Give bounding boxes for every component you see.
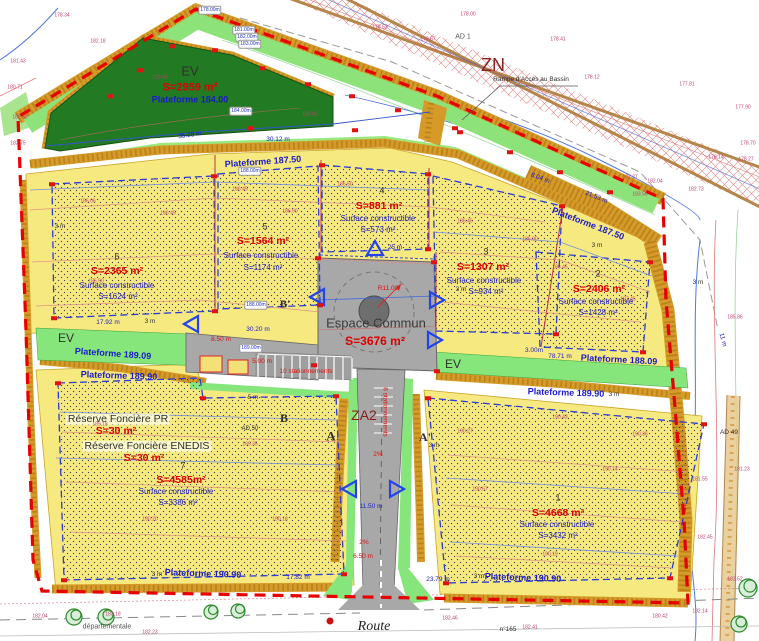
dimension-label: 17.92 m <box>96 320 120 327</box>
ev-strip-left-label: EV <box>58 332 74 344</box>
dimension-label: 10 stationnements <box>279 369 332 376</box>
survey-marker-icon <box>333 394 339 398</box>
dimension-label: 11.50 m <box>359 504 382 511</box>
lot-5-sc-area: S=1174 m² <box>244 264 283 272</box>
elevation-box: 184.00m <box>229 107 252 116</box>
lot-4-sc-label: Surface constructible <box>341 215 416 223</box>
survey-marker-icon <box>507 150 513 154</box>
reserve-pr-label: Réserve Foncière PR <box>66 414 170 425</box>
spot-elevation: 190.20 <box>142 518 157 523</box>
spot-elevation: 182.73 <box>688 188 703 193</box>
survey-marker-icon <box>553 332 559 336</box>
spot-elevation: 178.52 <box>372 26 387 31</box>
survey-marker-icon <box>49 182 55 186</box>
dimension-label: 3 m <box>693 280 704 287</box>
survey-marker-icon <box>107 94 113 98</box>
spot-elevation: 182.27 <box>622 176 637 181</box>
spot-elevation: 181.23 <box>734 468 749 473</box>
survey-marker-icon <box>212 309 218 313</box>
lot-4-sc-area: S=573 m² <box>361 226 396 234</box>
spot-elevation: 181.55 <box>692 478 707 483</box>
road-junction-point <box>327 618 334 625</box>
n165-label: n°165 <box>499 627 516 634</box>
survey-marker-icon <box>425 247 431 251</box>
spot-elevation: 182.75 <box>10 142 25 147</box>
survey-marker-icon <box>341 572 347 576</box>
survey-marker-icon <box>395 108 401 112</box>
survey-marker-icon <box>311 363 317 367</box>
elevation-box: 188.00m <box>238 167 261 176</box>
survey-marker-icon <box>211 174 217 178</box>
parcel-ad1-label: AD 1 <box>455 34 471 41</box>
reserve-enedis-label: Réserve Foncière ENEDIS <box>83 441 212 452</box>
spot-elevation: 178.12 <box>584 76 599 81</box>
spot-elevation: 185.86 <box>727 316 742 321</box>
spot-elevation: 178.67 <box>420 38 435 43</box>
lot-2-sc-area: S=1428 m² <box>578 309 617 317</box>
spot-elevation: 190.18 <box>272 518 287 523</box>
spot-elevation: 182.46 <box>442 617 457 622</box>
section-b-label: B <box>280 412 288 424</box>
survey-marker-icon <box>640 350 646 354</box>
spot-elevation: 177.81 <box>679 83 694 88</box>
lot-6-area: S=2365 m² <box>91 266 143 277</box>
departementale-label: départementale <box>83 624 132 631</box>
spot-elevation: 182.23 <box>142 631 157 636</box>
survey-marker-icon <box>667 576 673 580</box>
espace-commun-label: Espace Commun <box>326 317 426 330</box>
lot-5-sc-label: Surface constructible <box>224 252 299 260</box>
survey-marker-icon <box>425 396 431 400</box>
survey-marker-icon <box>259 66 265 70</box>
spot-elevation: 182.18 <box>90 40 105 45</box>
lot-6-number: 6 <box>114 253 119 262</box>
survey-marker-icon <box>315 256 321 260</box>
lot-1-number: 1 <box>555 494 560 503</box>
lot-3-area: S=1307 m² <box>457 262 509 273</box>
spot-elevation: 182.14 <box>692 610 707 615</box>
spot-elevation: 190.43 <box>552 416 567 421</box>
survey-marker-icon <box>431 260 437 264</box>
survey-marker-icon <box>607 190 613 194</box>
spot-elevation: 180.71 <box>7 86 22 91</box>
spot-elevation: 186.90 <box>282 210 297 215</box>
dimension-label: 6.50 m <box>353 554 373 561</box>
spot-elevation: 186.50 <box>337 183 352 188</box>
survey-marker-icon <box>559 204 565 208</box>
spot-elevation: 182.52 <box>727 578 742 583</box>
lot-4-area: S=881 m² <box>356 201 402 212</box>
parcel-ad50-label: AD 50 <box>242 426 259 432</box>
dimension-label: 3 m <box>145 319 156 326</box>
site-plan: EV S=2959 m² Plateforme 184.00 ZN ZA2 AD… <box>0 0 759 641</box>
elevation-box: 188.00m <box>244 301 267 310</box>
section-b-prime-label: B' <box>280 300 290 311</box>
survey-marker-icon <box>137 68 143 72</box>
parcel-ad49-label: AD 49 <box>720 430 738 437</box>
spot-elevation: 182.45 <box>697 536 712 541</box>
spot-elevation: 189.35 <box>242 443 257 448</box>
spot-elevation: 183.43 <box>152 76 167 81</box>
survey-marker-icon <box>200 396 206 400</box>
dimension-label: 3 m <box>456 287 467 294</box>
dimension-label: 3.00m <box>525 348 543 355</box>
spot-elevation: 178.14 <box>708 156 723 161</box>
dimension-label: 30.20 m <box>246 327 270 334</box>
dimension-label: 5.00 m <box>252 359 272 366</box>
ev-basin-area: S=2959 m² <box>163 83 218 94</box>
spot-elevation: 178.34 <box>54 14 69 19</box>
spot-elevation: 186.45 <box>457 220 472 225</box>
elevation-box: 189.00m <box>239 344 262 353</box>
dimension-label: 3 m <box>429 443 440 450</box>
dimension-label: 25 m <box>388 245 402 252</box>
spot-elevation: 181.43 <box>10 60 25 65</box>
survey-marker-icon <box>425 172 431 176</box>
elevation-box: 178.00m <box>198 6 221 15</box>
ev-basin-plateforme: Plateforme 184.00 <box>152 96 229 105</box>
survey-marker-icon <box>452 126 458 130</box>
survey-marker-icon <box>557 170 563 174</box>
section-a-label: A <box>326 430 335 443</box>
spot-elevation: 177.90 <box>735 106 750 111</box>
lot-5-number: 5 <box>262 223 267 232</box>
spot-elevation: 182.32 <box>12 116 27 121</box>
survey-marker-icon <box>55 381 61 385</box>
ev-basin-label: EV <box>181 65 198 78</box>
dimension-label: 8.50 m <box>211 337 231 344</box>
survey-marker-icon <box>352 128 358 132</box>
spot-elevation: 189.18 <box>92 423 107 428</box>
spot-elevation: 190.27 <box>457 430 472 435</box>
spot-elevation: 190.14 <box>602 468 617 473</box>
spot-elevation: 178.27 <box>738 158 753 163</box>
dimension-label: 3 m <box>55 224 66 231</box>
survey-marker-icon <box>443 581 449 585</box>
lot-5-area: S=1564 m² <box>237 236 289 247</box>
zone-za2-label: ZA2 <box>351 408 377 422</box>
spot-elevation: 190.36 <box>632 433 647 438</box>
spot-elevation: 180.42 <box>652 615 667 620</box>
spot-elevation: 186.06 <box>80 200 95 205</box>
spot-elevation: 187.45 <box>620 298 635 303</box>
lot-4-number: 4 <box>379 187 384 196</box>
spot-elevation: 186.45 <box>160 212 175 217</box>
lot-1-sc-label: Surface constructible <box>520 521 595 529</box>
survey-marker-icon <box>61 578 67 582</box>
spot-elevation: 182.41 <box>522 626 537 631</box>
lot-1-sc-area: S=3432 m² <box>538 532 577 540</box>
spot-elevation: 183.60 <box>302 113 317 118</box>
spot-elevation: 186.45 <box>232 188 247 193</box>
survey-marker-icon <box>169 44 175 48</box>
survey-marker-icon <box>319 163 325 167</box>
spot-elevation: 178.70 <box>740 142 755 147</box>
elevation-box: 183.00m <box>238 40 261 49</box>
spot-elevation: 178.00 <box>460 13 475 18</box>
spot-elevation: 182.04 <box>647 180 662 185</box>
dimension-label: 2% <box>359 540 368 547</box>
spot-elevation: 190.67 <box>472 488 487 493</box>
lot-3-sc-label: Surface constructible <box>447 277 522 285</box>
dimension-label: 3 m <box>152 572 163 579</box>
survey-marker-icon <box>247 126 253 130</box>
lot-3-sc-area: S=934 m² <box>469 288 504 296</box>
spot-elevation: 190.19 <box>542 553 557 558</box>
dimension-label: 3 m <box>592 243 603 250</box>
spot-elevation: 183.56 <box>632 193 647 198</box>
dimension-label: R11.00 <box>378 286 398 293</box>
lot-6-sc-area: S=1624 m² <box>98 293 137 301</box>
dimension-label: 30.12 m <box>266 137 290 144</box>
survey-marker-icon <box>51 316 57 320</box>
dimension-label: 5 m <box>248 395 259 402</box>
survey-marker-icon <box>701 422 707 426</box>
lot-7-sc-label: Surface constructible <box>139 488 214 496</box>
lot-2-number: 2 <box>595 270 600 279</box>
dimension-label: 6 stationnements <box>381 387 388 437</box>
lot-7-area: S=4585m² <box>156 475 205 486</box>
lot-2-area: S=2406 m² <box>573 284 625 295</box>
dimension-label: 78.71 m <box>548 354 572 361</box>
survey-marker-icon <box>212 48 218 52</box>
spot-elevation: 178.41 <box>550 38 565 43</box>
survey-marker-icon <box>457 130 463 134</box>
reserve-enedis-area: S=30 m² <box>124 453 165 464</box>
survey-marker-icon <box>647 260 653 264</box>
dimension-label: 2% <box>373 452 382 459</box>
zone-zn-label: ZN <box>481 56 505 74</box>
rampe-label: Rampe d'Accès au Bassin <box>493 77 569 84</box>
spot-elevation: 186.90 <box>522 238 537 243</box>
dimension-label: 3 m <box>609 392 620 399</box>
dimension-label: 17.82 m <box>286 575 310 582</box>
spot-elevation: 182.04 <box>32 615 47 620</box>
ev-strip-right-label: EV <box>445 358 461 370</box>
lot-3-number: 3 <box>483 248 488 257</box>
spot-elevation: 186.90 <box>88 280 103 285</box>
espace-commun-area: S=3676 m² <box>345 335 405 347</box>
survey-marker-icon <box>349 94 355 98</box>
spot-elevation: 183.18 <box>105 613 120 618</box>
lot-1-area: S=4668 m² <box>532 508 584 519</box>
route-label: Route <box>358 620 391 634</box>
lot-7-sc-area: S=3386 m² <box>158 499 197 507</box>
dimension-label: 3 m <box>474 574 485 581</box>
survey-marker-icon <box>434 369 440 373</box>
lot-7-number: 7 <box>180 462 185 471</box>
survey-marker-icon <box>317 303 323 307</box>
spot-elevation: 186.45 <box>552 266 567 271</box>
survey-marker-icon <box>305 82 311 86</box>
